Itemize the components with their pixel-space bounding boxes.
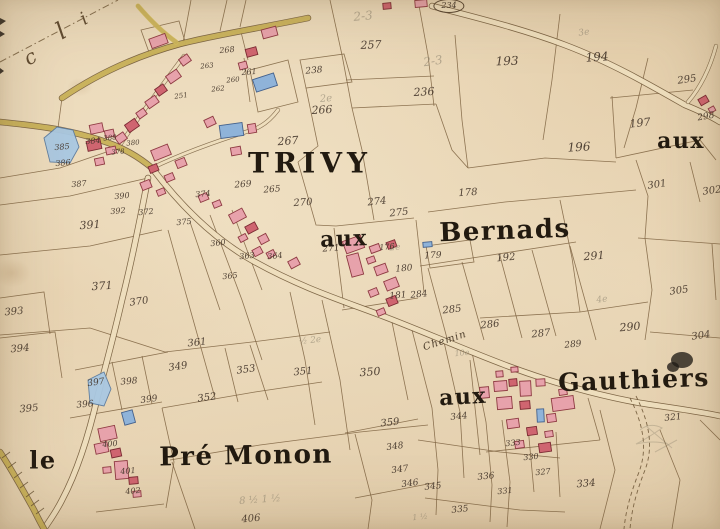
building xyxy=(509,379,518,387)
building xyxy=(546,413,556,422)
parcel-number: 333 xyxy=(505,438,521,449)
parcel-number: 336 xyxy=(477,471,495,483)
place-label: aux xyxy=(438,383,487,411)
parcel-number: 344 xyxy=(450,411,468,423)
parcel-number: 391 xyxy=(79,218,101,232)
features-layer xyxy=(0,0,720,529)
parcel-number: 289 xyxy=(564,339,582,351)
parcel-number: 327 xyxy=(535,467,551,478)
parcel-number: 194 xyxy=(585,49,609,65)
place-label: Gauthiers xyxy=(558,363,711,397)
building xyxy=(148,164,159,174)
building xyxy=(415,0,428,8)
building xyxy=(520,381,532,397)
parcel-number: 335 xyxy=(451,504,469,516)
building xyxy=(511,367,518,373)
parcel-number: 334 xyxy=(576,478,596,491)
building xyxy=(175,157,187,168)
parcel-number: 350 xyxy=(359,365,381,379)
building xyxy=(288,257,301,269)
building xyxy=(545,430,554,437)
public-building xyxy=(423,242,432,248)
parcel-number: 330 xyxy=(523,452,539,463)
parcel-number: 290 xyxy=(619,320,641,335)
building xyxy=(229,208,247,224)
parcel-number: 178 xyxy=(458,187,478,199)
parcel-number: 291 xyxy=(583,249,605,263)
building xyxy=(166,69,182,84)
parcel-number: 390 xyxy=(114,191,130,201)
building xyxy=(145,95,159,108)
parcel-number: 236 xyxy=(413,85,435,99)
parcel-number: 371 xyxy=(91,279,113,293)
parcel-number: 363 xyxy=(239,251,255,262)
parcel-number: 287 xyxy=(531,328,551,341)
parcel-number: 396 xyxy=(76,399,94,410)
building xyxy=(140,179,152,190)
building xyxy=(151,144,172,161)
building xyxy=(494,380,508,391)
building xyxy=(383,3,391,10)
parcel-number: 179 xyxy=(424,251,442,262)
parcel-number: 268 xyxy=(219,45,235,55)
building xyxy=(526,426,537,435)
place-label: Bernads xyxy=(439,214,571,249)
parcel-number: 331 xyxy=(497,486,513,497)
parcel-number: 284 xyxy=(410,289,428,301)
parcel-number: 361 xyxy=(187,337,207,350)
building xyxy=(110,448,121,458)
parcel-number: 384 xyxy=(85,136,101,146)
parcel-number: 275 xyxy=(389,207,409,220)
parcel-number: 269 xyxy=(234,179,252,190)
place-label: Pré Monon xyxy=(159,439,333,472)
parcel-number: 286 xyxy=(480,319,500,332)
parcel-number: 398 xyxy=(120,376,138,387)
parcel-number: 266 xyxy=(311,103,333,117)
pencil-note: 1 ½ xyxy=(412,512,428,523)
parcel-number: 274 xyxy=(367,196,387,209)
parcel-number: 378 xyxy=(111,147,125,156)
parcel-number: 261 xyxy=(241,67,257,77)
building xyxy=(497,396,513,409)
parcel-number: 395 xyxy=(19,403,39,416)
parcel-number: 406 xyxy=(241,513,261,526)
pencil-note: 3e xyxy=(578,27,590,38)
parcel-number: 263 xyxy=(200,61,214,70)
place-label: TRIVY xyxy=(248,147,372,180)
building xyxy=(368,288,379,298)
parcel-number: 262 xyxy=(211,84,225,93)
building xyxy=(261,26,278,39)
parcel-number: 388 xyxy=(103,133,117,142)
public-building xyxy=(122,410,136,425)
building xyxy=(536,379,545,386)
parcel-number: 401 xyxy=(120,466,136,476)
parcel-number: 394 xyxy=(10,343,30,356)
building xyxy=(136,108,147,119)
parcel-number: 260 xyxy=(226,75,240,84)
parcel-number: 360 xyxy=(210,238,226,249)
building xyxy=(164,173,175,183)
building xyxy=(551,396,575,412)
parcel-number: 400 xyxy=(102,439,118,449)
place-label: aux xyxy=(657,128,705,154)
parcel-number: 265 xyxy=(263,184,281,195)
building xyxy=(155,84,168,96)
parcel-number: 392 xyxy=(110,206,126,216)
building xyxy=(230,146,241,156)
parcel-number: 180 xyxy=(395,263,413,274)
public-building xyxy=(537,409,545,422)
building xyxy=(538,442,551,453)
building xyxy=(245,47,258,58)
building xyxy=(698,95,709,106)
building xyxy=(247,123,256,133)
building xyxy=(89,123,104,135)
building xyxy=(520,401,531,410)
parcel-number: 374 xyxy=(195,189,211,200)
parcel-number: 193 xyxy=(495,54,518,69)
building xyxy=(258,233,270,244)
parcel-number: 302 xyxy=(702,184,720,198)
parcel-number: 181 xyxy=(389,290,407,301)
parcel-number: 196 xyxy=(567,139,591,154)
parcel-number: 365 xyxy=(222,271,238,282)
building xyxy=(125,118,140,132)
building xyxy=(156,188,166,197)
pencil-note: 4e xyxy=(596,294,608,305)
building xyxy=(496,371,503,378)
building xyxy=(506,418,519,429)
building xyxy=(238,233,248,242)
building xyxy=(129,477,139,485)
road-number: 234 xyxy=(441,1,456,10)
parcel-number: 364 xyxy=(267,251,283,262)
place-label: aux xyxy=(320,225,369,253)
building xyxy=(204,116,216,127)
parcel-number: 192 xyxy=(496,252,516,265)
building xyxy=(376,308,386,317)
parcel-number: 372 xyxy=(138,207,154,218)
parcel-number: 257 xyxy=(360,38,381,52)
parcel-number: 385 xyxy=(54,142,70,152)
parcel-number: 402 xyxy=(125,486,141,496)
parcel-number: 351 xyxy=(293,366,313,379)
cadastral-map: 2-32-32e3e2e½ 2e10e8 ½ 1 ½1 ½4e 25723823… xyxy=(0,0,720,529)
public-building xyxy=(219,122,244,138)
place-label: le xyxy=(29,446,56,475)
parcel-number: 238 xyxy=(305,65,323,76)
pencil-note: 10e xyxy=(454,348,470,359)
building xyxy=(212,200,222,209)
pencil-note: 2-3 xyxy=(353,8,373,24)
building xyxy=(346,253,363,277)
parcel-number: 359 xyxy=(380,417,400,430)
parcel-number: 176 xyxy=(379,242,395,252)
pencil-note: 2-3 xyxy=(422,53,443,70)
building xyxy=(103,467,111,474)
building xyxy=(366,256,376,264)
building xyxy=(384,277,400,291)
parcel-number: 380 xyxy=(126,138,140,147)
parcel-number: 386 xyxy=(55,158,71,168)
parcel-number: 270 xyxy=(293,197,313,209)
parcel-number: 375 xyxy=(176,217,192,228)
building xyxy=(179,54,192,66)
building xyxy=(149,33,168,48)
parcel-number: 387 xyxy=(71,179,87,189)
parcel-number: 345 xyxy=(424,481,442,493)
building xyxy=(245,222,258,234)
parcel-number: 393 xyxy=(4,306,24,319)
parcel-number: 321 xyxy=(664,412,682,424)
building xyxy=(94,157,104,166)
parcel-number: 285 xyxy=(442,304,462,317)
building xyxy=(374,263,388,276)
parcel-number: 197 xyxy=(629,115,651,130)
